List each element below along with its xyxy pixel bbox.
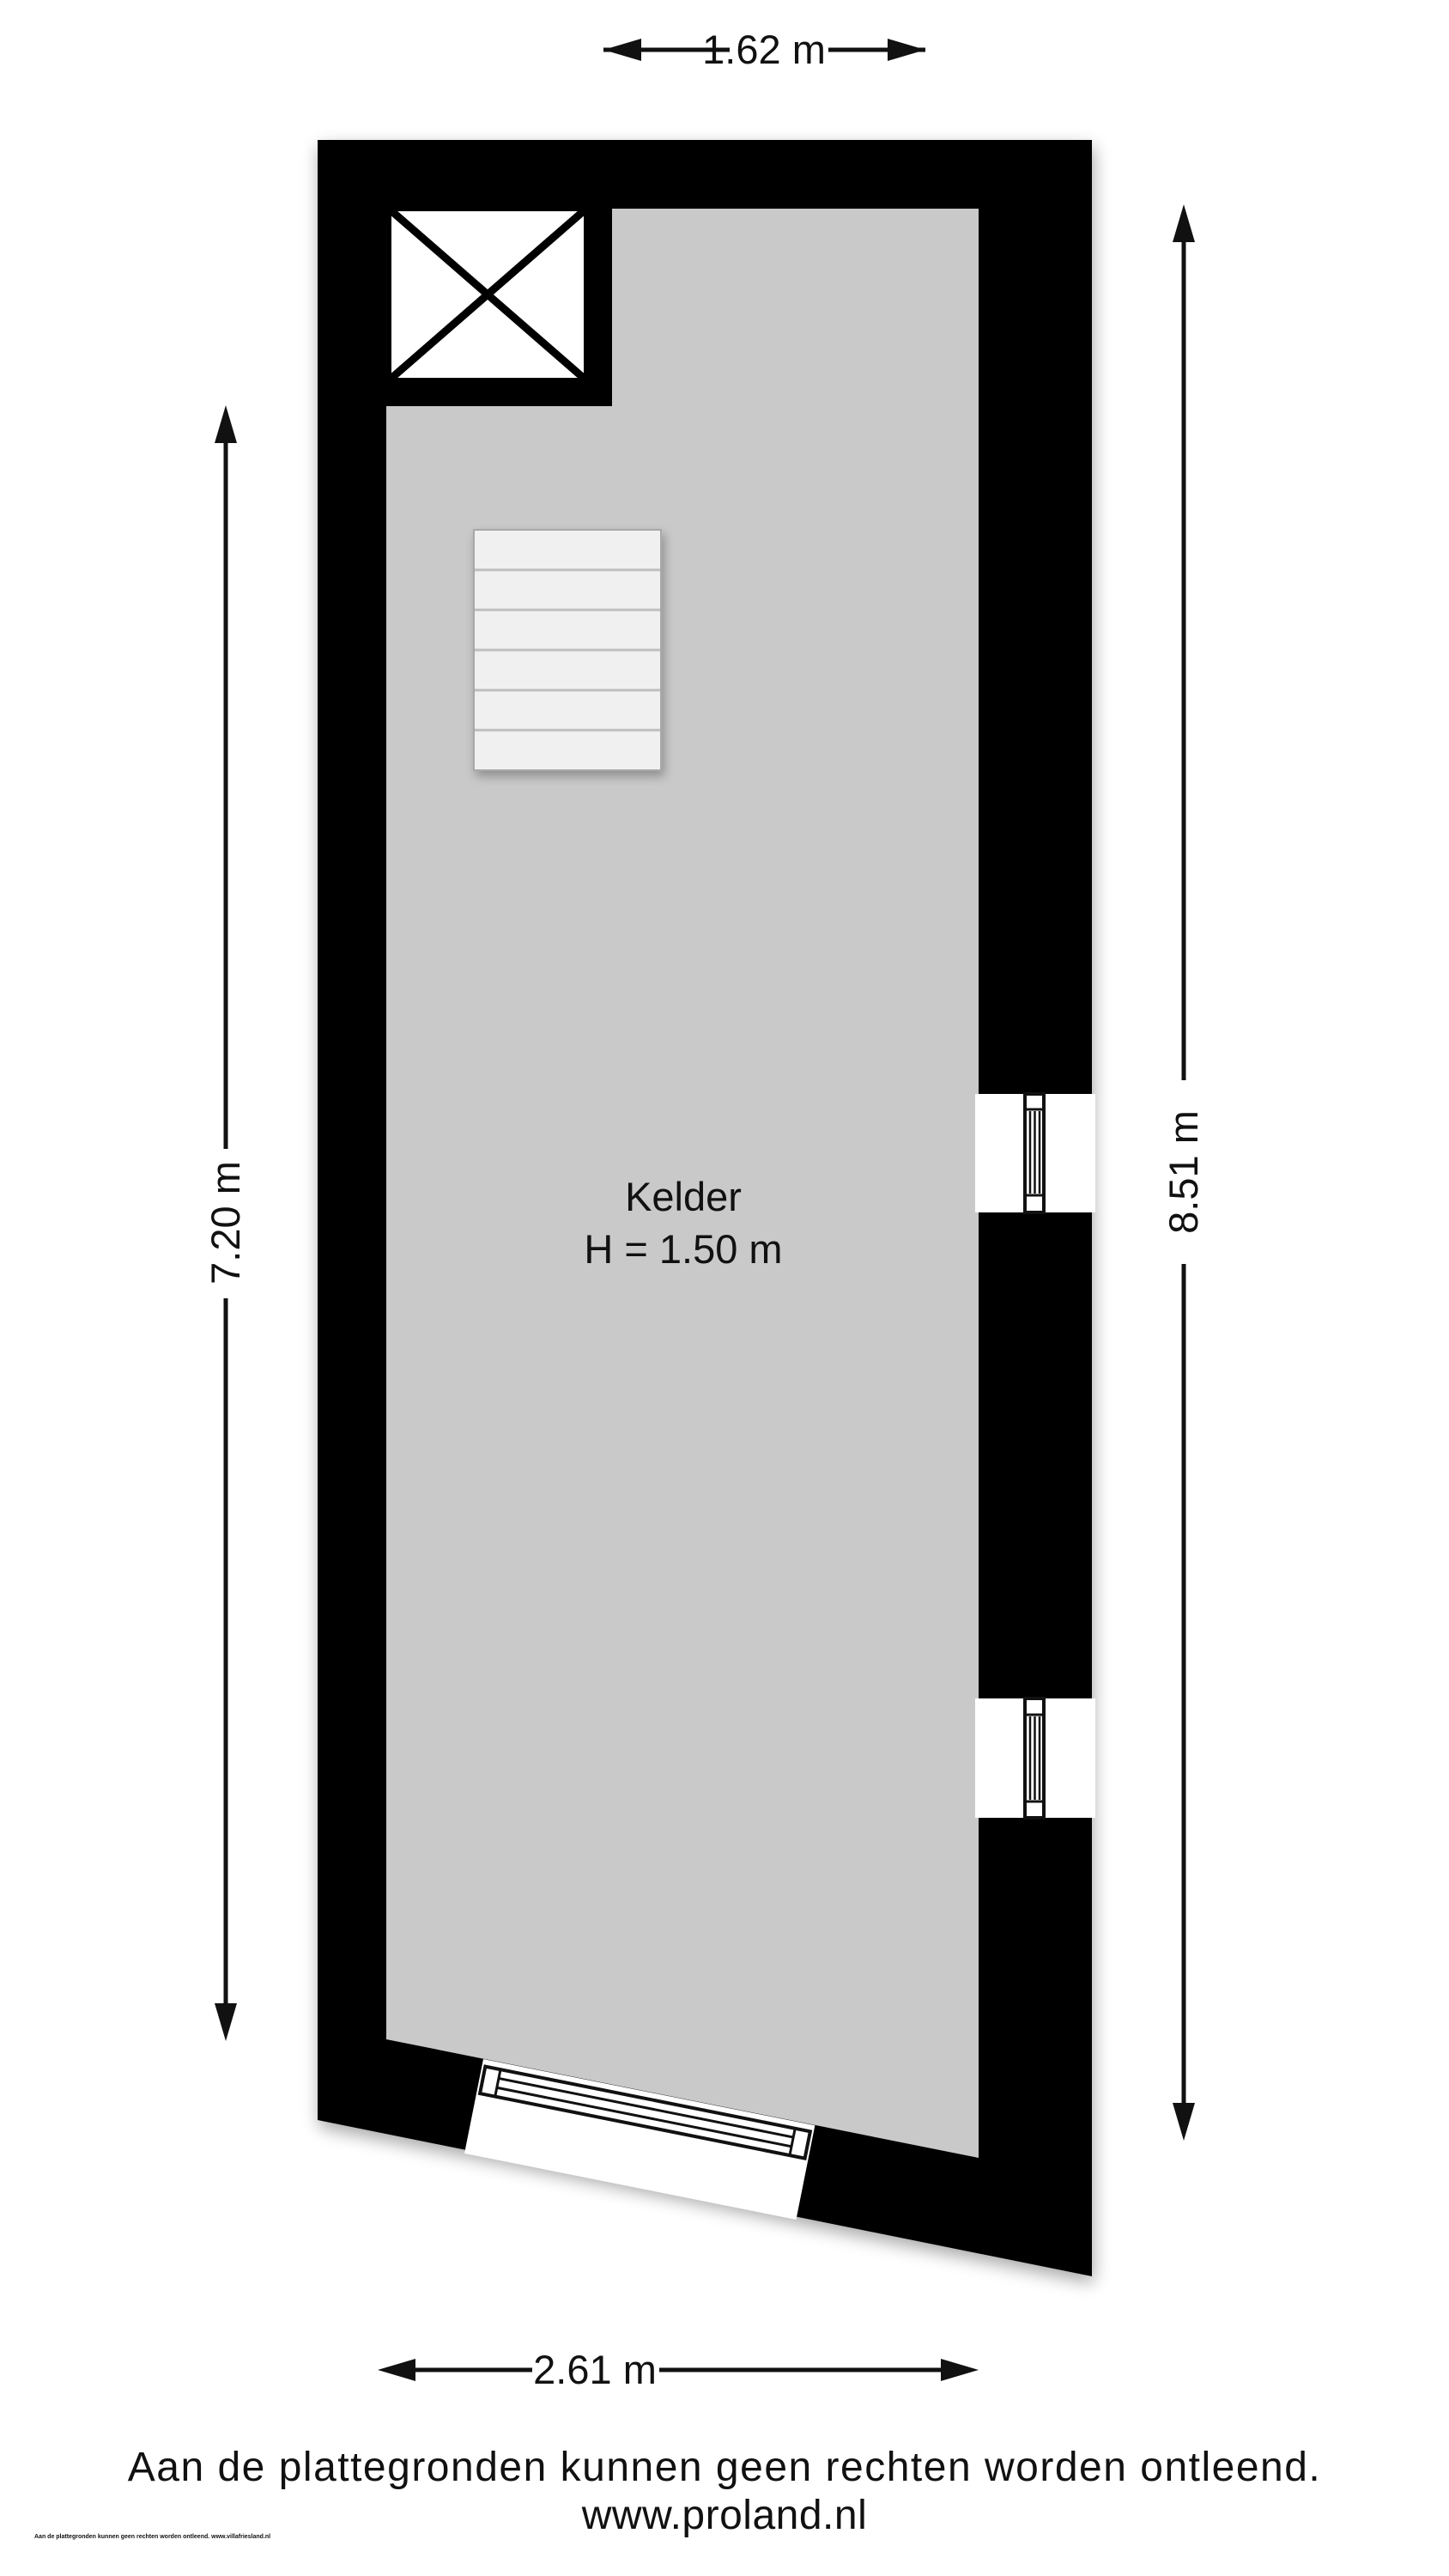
dimension-left: 7.20 m xyxy=(203,405,248,2041)
arrow-up-icon xyxy=(215,405,237,443)
dimension-label: 7.20 m xyxy=(203,1161,248,1285)
arrow-right-icon xyxy=(941,2359,979,2381)
arrow-down-icon xyxy=(215,2003,237,2041)
chimney-shaft xyxy=(389,209,586,380)
arrow-right-icon xyxy=(888,39,925,61)
fine-print-text: Aan de plattegronden kunnen geen rechten… xyxy=(34,2534,270,2540)
disclaimer-text: Aan de plattegronden kunnen geen rechten… xyxy=(0,2444,1449,2491)
dimension-top: 1.62 m xyxy=(603,27,925,72)
staircase xyxy=(474,530,661,770)
room-height-label: H = 1.50 m xyxy=(584,1226,782,1272)
website-text: www.proland.nl xyxy=(0,2492,1449,2539)
dimension-label: 1.62 m xyxy=(702,27,826,72)
arrow-up-icon xyxy=(1173,204,1195,242)
floorplan-page: 1.62 m 7.20 m 8.51 m 2.61 m Kelder xyxy=(0,0,1449,2576)
dimension-bottom: 2.61 m xyxy=(378,2347,979,2392)
room-name-label: Kelder xyxy=(625,1174,742,1219)
arrow-left-icon xyxy=(378,2359,415,2381)
window-lower xyxy=(975,1698,1095,1818)
arrow-down-icon xyxy=(1173,2103,1195,2141)
dimension-label: 2.61 m xyxy=(533,2347,657,2392)
window-upper xyxy=(975,1094,1095,1212)
floorplan-canvas: 1.62 m 7.20 m 8.51 m 2.61 m Kelder xyxy=(0,0,1449,2576)
dimension-right: 8.51 m xyxy=(1161,204,1206,2141)
arrow-left-icon xyxy=(603,39,641,61)
dimension-label: 8.51 m xyxy=(1161,1110,1206,1234)
